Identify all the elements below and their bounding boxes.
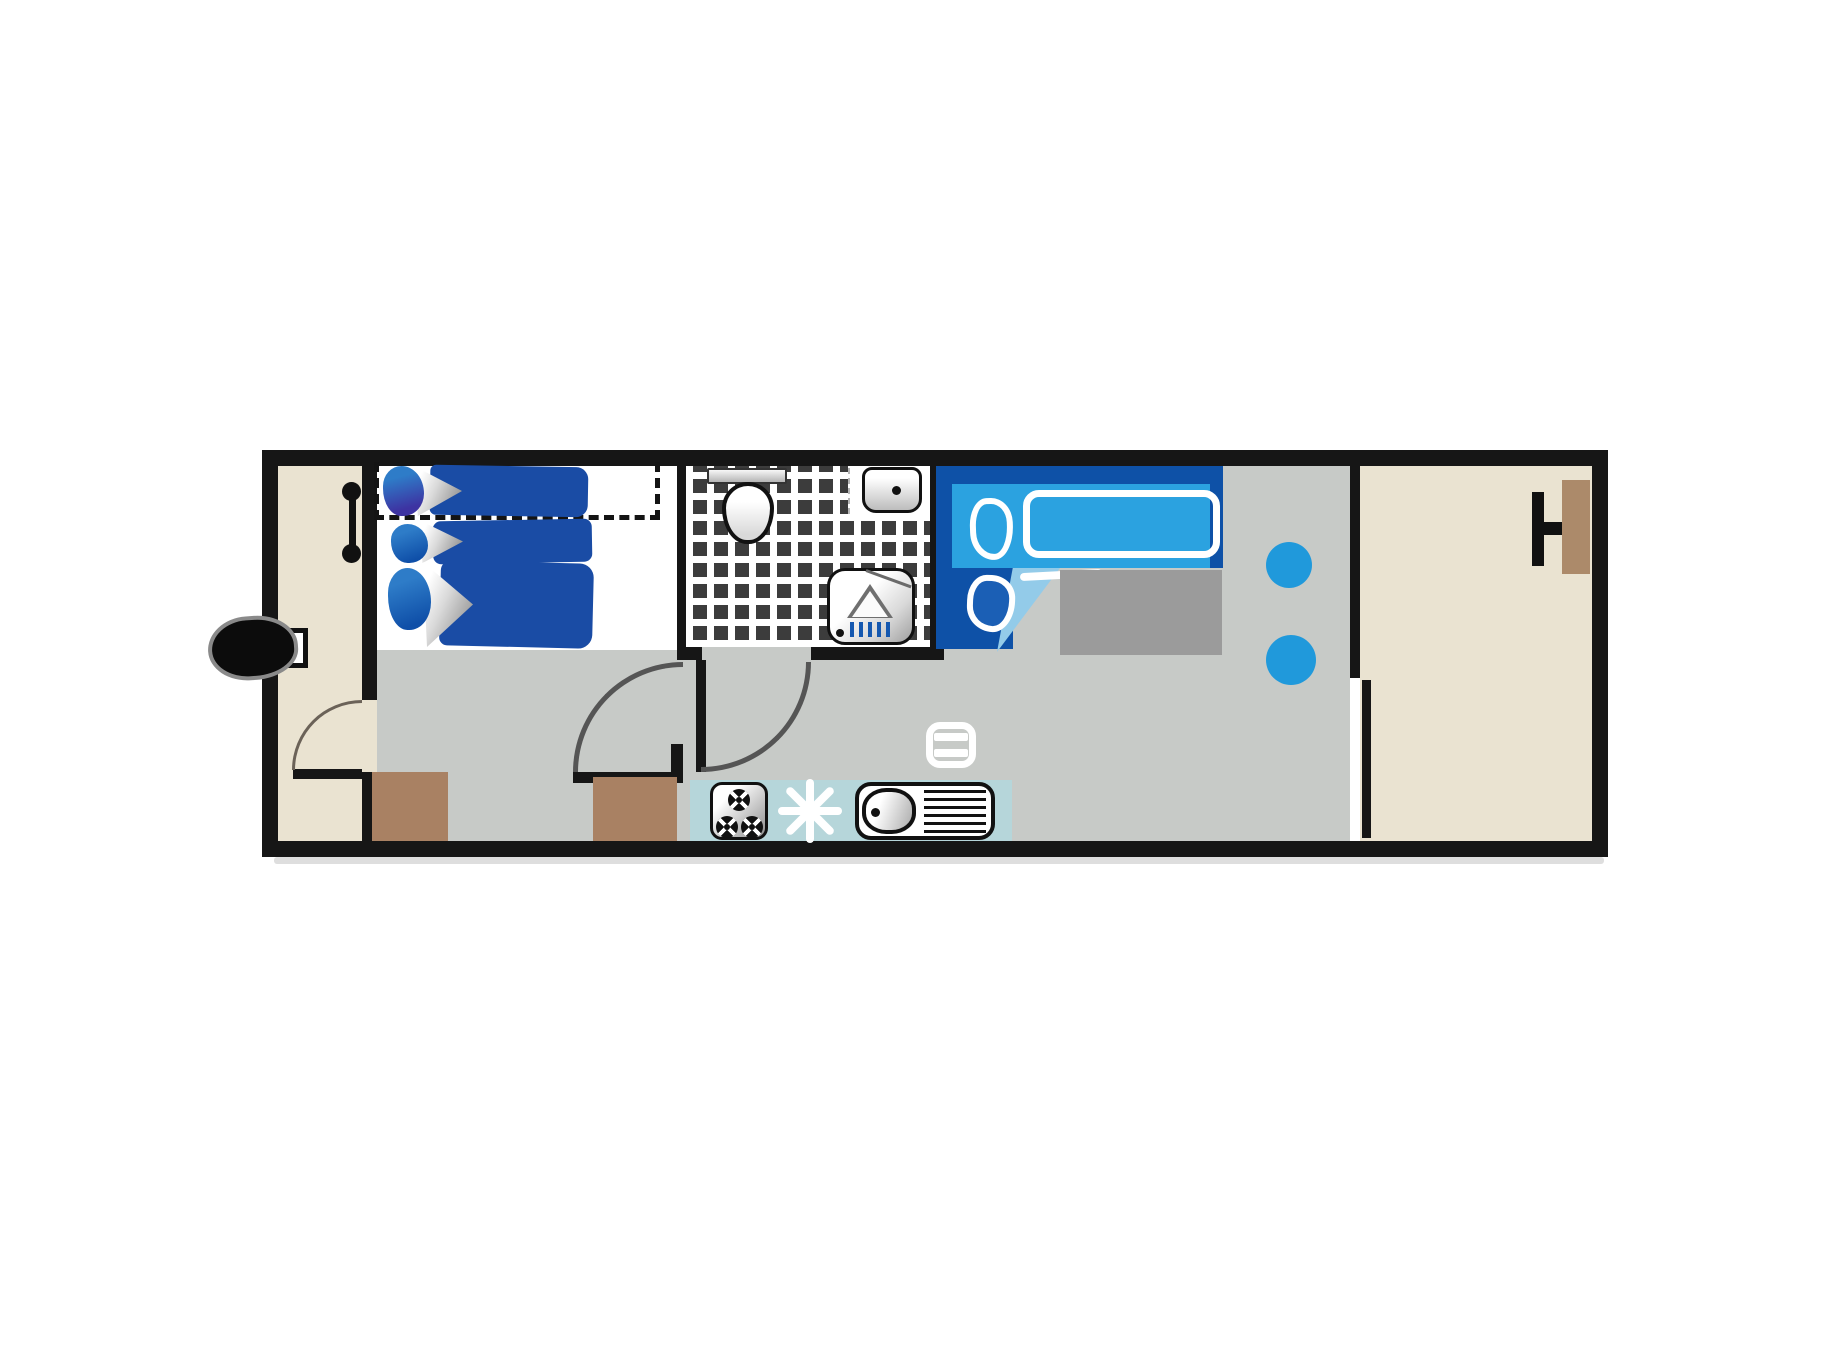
washbasin-divider	[848, 468, 850, 514]
stool-icon-1	[1266, 542, 1312, 588]
burner-icon	[741, 816, 763, 838]
side-block	[1060, 570, 1222, 655]
washbasin-tap-icon	[892, 486, 901, 495]
wall-bathroom-bottom-left	[677, 647, 702, 660]
rail-end-top	[342, 482, 361, 501]
corridor-cabinet	[593, 777, 677, 841]
wall-bathroom-left	[677, 466, 686, 660]
table-icon-bar	[934, 733, 968, 741]
terrace-table-top	[1562, 480, 1590, 574]
sink-tap-icon	[871, 808, 880, 817]
hall-doorway	[362, 700, 377, 772]
floor-plan-canvas	[0, 0, 1828, 1371]
rail-end-bottom	[342, 544, 361, 563]
wall-terrace	[1350, 466, 1360, 678]
terrace-table-arm	[1544, 522, 1564, 535]
table-icon	[926, 722, 976, 768]
entry-step-icon	[208, 614, 308, 684]
plan-drop-shadow	[274, 857, 1604, 864]
terrace-bench-icon	[1532, 492, 1544, 566]
bedroom-cabinet	[372, 772, 448, 841]
shower-spray-icon	[850, 622, 892, 637]
sink-drainer-icon	[924, 790, 986, 834]
wall-bathroom-bottom-right	[811, 647, 944, 660]
stool-icon-2	[1266, 635, 1316, 685]
burner-icon	[728, 789, 750, 811]
sliding-door-track	[1350, 678, 1360, 841]
terrace-sliding-door	[1362, 680, 1371, 838]
table-icon-bar	[934, 749, 968, 757]
burner-icon	[716, 816, 738, 838]
double-bed-duvet-outline	[1023, 490, 1220, 558]
entry-step-shape	[206, 613, 300, 683]
single-bed-1-pillow	[391, 524, 428, 563]
hall-door-leaf	[293, 769, 362, 779]
shower-drain-icon	[836, 629, 844, 637]
